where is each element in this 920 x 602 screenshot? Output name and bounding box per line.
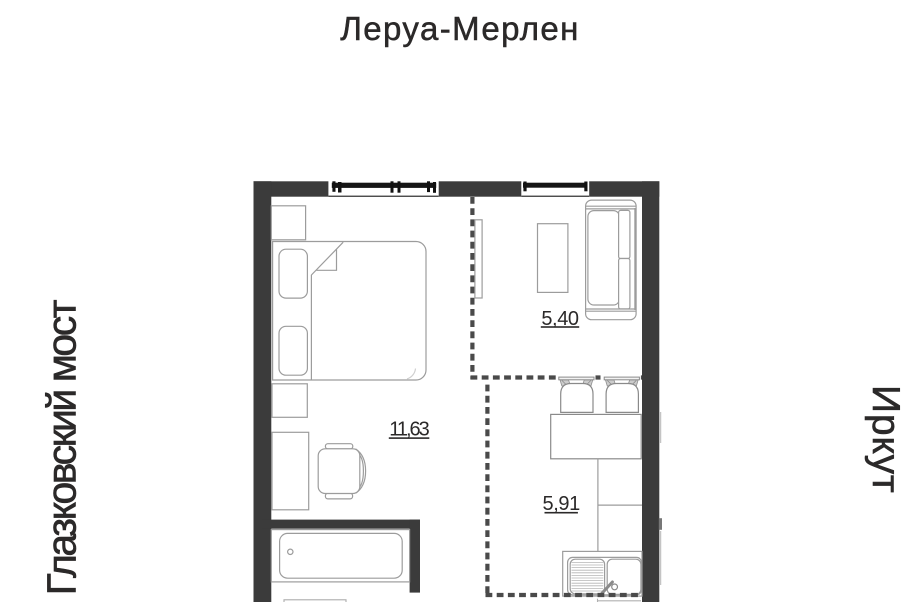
svg-text:Глазковский мост: Глазковский мост: [38, 299, 84, 595]
svg-text:5,91: 5,91: [543, 493, 581, 515]
svg-text:Леруа-Мерлен: Леруа-Мерлен: [340, 10, 580, 47]
svg-text:Иркут: Иркут: [864, 385, 907, 494]
svg-text:11,63: 11,63: [389, 418, 429, 440]
